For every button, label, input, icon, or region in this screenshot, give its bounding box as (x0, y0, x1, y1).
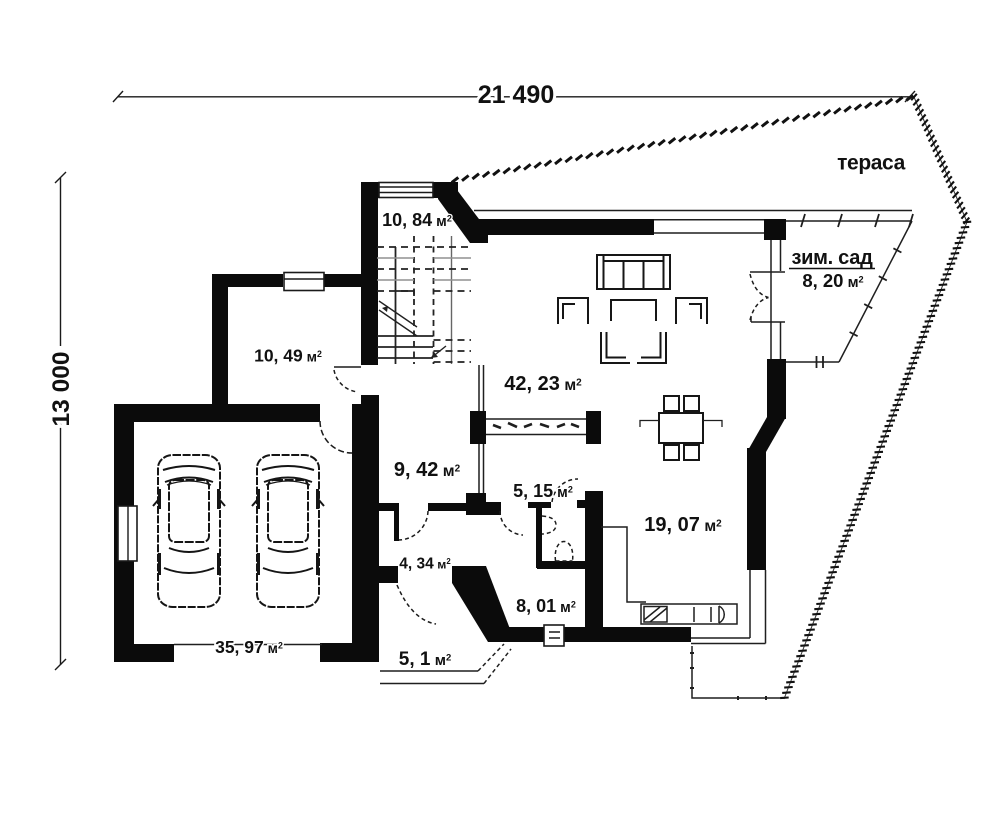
svg-text:тераса: тераса (837, 152, 905, 175)
svg-text:10, 49 м2: 10, 49 м2 (254, 346, 322, 366)
svg-text:42, 23 м2: 42, 23 м2 (504, 373, 582, 395)
svg-text:4, 34 м2: 4, 34 м2 (399, 556, 451, 573)
svg-text:21 490: 21 490 (478, 81, 554, 109)
svg-text:9, 42 м2: 9, 42 м2 (394, 459, 461, 481)
svg-text:5, 1 м2: 5, 1 м2 (399, 649, 451, 670)
svg-text:19, 07 м2: 19, 07 м2 (644, 514, 722, 536)
svg-text:зим. сад: зим. сад (792, 247, 874, 269)
svg-text:35, 97 м2: 35, 97 м2 (215, 637, 283, 657)
svg-text:13 000: 13 000 (48, 352, 75, 427)
